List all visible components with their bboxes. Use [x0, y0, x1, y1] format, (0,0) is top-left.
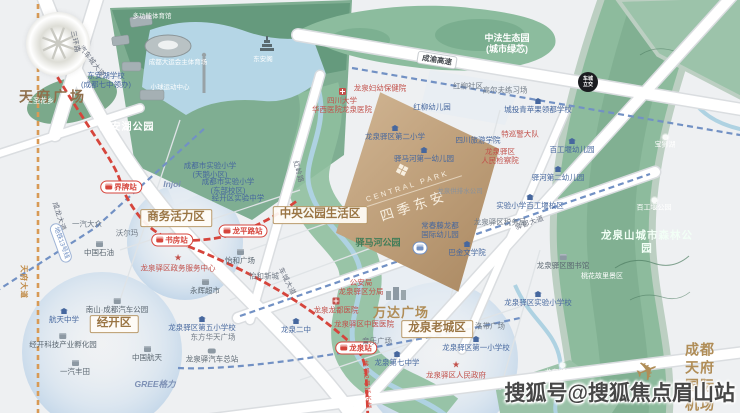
zone-longquan-old-town: 龙泉老城区 [401, 320, 473, 338]
poi-longquan-no7-middle-text: 龙泉第七中学 [375, 358, 420, 367]
universiade-stadium-label-text: 成都大运会主体育场 [149, 59, 208, 67]
peach-blossom-area-label-text: 桃花故里景区 [581, 273, 623, 281]
poi-tax-bureau-text: 龙泉驿区税务局 [474, 218, 527, 227]
poi-shiyan-primary-tiane-text: 成都市实验小学 (天鹅小区) [184, 161, 237, 179]
park-icon [651, 197, 657, 203]
bldg-icon [72, 360, 79, 366]
yidu-avenue-label-text: 驿都大道 [514, 215, 545, 233]
longquan-lake-area-label: 龙泉湖景区 [545, 362, 580, 377]
poi-china-aerospace: 中国航天 [132, 346, 162, 362]
metro2-extension-label-text: 地铁2号延长线 [360, 360, 371, 410]
poi-procuratorate-text: 龙泉驿区 人民检察院 [481, 147, 519, 165]
poi-golf-practice-range-text: 高尔夫练习场 [483, 86, 528, 95]
poi-no1-primary-school: 龙泉驿区第一小学校 [442, 336, 510, 352]
poi-tcm-hospital: 龙泉驿区中医医院 [334, 320, 394, 329]
school-icon [472, 336, 480, 342]
poi-bajin-academy: 巴金文学院 [448, 241, 486, 257]
poi-library-text: 龙泉驿区图书馆 [537, 261, 590, 270]
small-ball-center-label: 小球运动中心 [151, 84, 190, 92]
poi-faw-toyota-text: 一汽丰田 [60, 367, 90, 376]
zone-longquan-old-town-text: 龙泉老城区 [408, 322, 466, 336]
school-icon [420, 147, 428, 153]
poi-donganhu-school-text: 东安湖学校 (成都七中领办) [81, 71, 131, 89]
poi-jingkai-experimental-middle-text: 经开区实验中学 [212, 194, 265, 203]
station-jiepai: 界牌站 [100, 181, 142, 194]
poi-music-plaza: 音乐广场 [362, 337, 392, 346]
interchange-badge: 车城 立交 [578, 72, 598, 92]
tianfu-square-label-text: 天府广场 [19, 89, 87, 106]
sanhuan-road-label: 三环路 [68, 30, 81, 54]
hongling-road-label-text: 红岭路 [290, 160, 304, 184]
poi-district-government: 龙泉驿区人民政府 [426, 361, 486, 380]
poi-no5-primary-school-text: 龙泉驿区第五小学校 [168, 323, 236, 332]
cross-icon [333, 298, 340, 305]
poi-jingkai-incubator: 经开科技产业孵化园 [29, 333, 97, 349]
poi-hongliu-community: 红柳社区 [453, 82, 483, 91]
poi-maternity-hospital-text: 龙泉妇幼保健院 [354, 84, 407, 93]
station-longpinglu: 龙平路站 [219, 225, 268, 238]
train-red-icon [224, 228, 231, 234]
poi-gov-service-center: 龙泉驿区政务服务中心 [141, 254, 216, 273]
poi-no1-primary-school-text: 龙泉驿区第一小学校 [442, 343, 510, 352]
bldg-icon [144, 346, 151, 352]
yimahe-park-label: 驿马河公园 [355, 238, 400, 249]
small-ball-center-label-text: 小球运动中心 [151, 84, 190, 92]
poi-district-government-text: 龙泉驿区人民政府 [426, 371, 486, 380]
baigongyan-park-label-text: 百工堰公园 [637, 204, 672, 212]
poi-no2-primary-school: 龙泉驿区第二小学 [365, 125, 425, 141]
poi-dongfang-huatian-plaza-text: 东方华天广场 [191, 333, 236, 342]
poi-yonghui-supermarket-text: 永辉超市 [190, 286, 220, 295]
wanda-plaza-label-text: 万达广场 [373, 305, 429, 321]
poi-police-branch: 公安局 龙泉驿区分局 [339, 278, 384, 296]
school-icon [393, 351, 401, 357]
station-blue-unnamed [413, 242, 428, 255]
poi-huaxi-longquan-hospital: 四川大学 华西医院龙泉医院 [312, 88, 372, 114]
school-icon [534, 291, 542, 297]
longquanshan-forest-park-label-text: 龙泉山城市森林公园 [601, 229, 694, 254]
poi-sichuan-tourism-college: 四川旅游学院 [456, 136, 501, 145]
poi-petrochina-text: 中国石油 [84, 248, 114, 257]
school-icon [463, 241, 471, 247]
poi-no2-primary-school-text: 龙泉驿区第二小学 [365, 132, 425, 141]
yimahe-park-label-text: 驿马河公园 [355, 238, 400, 249]
bldg-icon [237, 249, 244, 255]
poi-ivy-longdu-kindergarten-text: 常春藤龙都 国际幼儿园 [421, 221, 459, 239]
poi-injoi: Injoi [163, 179, 180, 189]
qichecheng-avenue-label: 汽车城大道 [76, 45, 106, 80]
poi-tcm-hospital-text: 龙泉驿区中医医院 [334, 320, 394, 329]
poi-procuratorate: 龙泉驿区 人民检察院 [481, 147, 519, 165]
train-red-icon [156, 237, 163, 243]
school-icon [554, 166, 562, 172]
poi-yimahe-no1-kindergarten-text: 驿马河第一幼儿园 [394, 154, 454, 163]
poi-baigongyan-kindergarten: 百工堰幼儿园 [550, 138, 595, 154]
poi-water-supply-company-text: 龙泉供排水公司 [437, 188, 483, 196]
chengyu-expressway-pill-text: 成渝高速 [421, 53, 452, 67]
poi-library: 龙泉驿区图书馆 [537, 254, 590, 270]
poi-hongliu-community-text: 红柳社区 [453, 82, 483, 91]
zone-jingkai-district: 经开区 [90, 315, 139, 333]
poi-hongliu-kindergarten-text: 红柳幼儿园 [413, 103, 451, 112]
dongange-pavilion-label-text: 东安阁 [253, 56, 273, 64]
poi-injoi-text: Injoi [163, 179, 180, 189]
school-icon [526, 194, 534, 200]
dongange-pavilion-label: 东安阁 [253, 56, 273, 64]
poi-jingkai-experimental-middle: 经开区实验中学 [212, 194, 265, 203]
school-icon [198, 316, 206, 322]
poi-longquanyi-bus-terminal-text: 龙泉驿汽车总站 [186, 355, 239, 364]
bus-icon [208, 349, 216, 354]
location-map: ❖ CENTRAL PARK 四季东安 ✈ 天府广场三环路汽车城大道成龙大道天府… [0, 0, 740, 413]
donganhu-park-label-text: 东安湖公园 [100, 122, 155, 134]
tianfu-avenue-label: 天府大道 [20, 265, 29, 299]
poi-yihe-newtown-text: 怡和新城 [249, 272, 279, 281]
poi-nanshan-auto-park: 南山·成都汽车公园 [86, 298, 149, 314]
bldg-icon [96, 241, 103, 247]
park-icon [662, 134, 668, 140]
poi-faw-volkswagen: 一汽大众 [72, 220, 102, 229]
checheng-avenue-label: 车城大道 [275, 267, 296, 298]
poi-yihe-plaza-text: 怡和广场 [225, 256, 255, 265]
poi-shiyan-primary-tiane: 成都市实验小学 (天鹅小区) [184, 161, 237, 179]
peach-blossom-area-label: 桃花故里景区 [581, 273, 623, 281]
train-red-icon [105, 184, 112, 190]
poi-faw-toyota: 一汽丰田 [60, 360, 90, 376]
train-blue-icon [417, 245, 424, 251]
poi-yihe-plaza: 怡和广场 [225, 249, 255, 265]
poi-sichuan-tourism-college-text: 四川旅游学院 [456, 136, 501, 145]
qichecheng-avenue-label-text: 汽车城大道 [76, 45, 106, 80]
poi-faw-volkswagen-text: 一汽大众 [72, 220, 102, 229]
poi-gov-service-center-text: 龙泉驿区政务服务中心 [141, 264, 216, 273]
poi-baigongyan-kindergarten-text: 百工堰幼儿园 [550, 145, 595, 154]
poi-golf-practice-range: 高尔夫练习场 [483, 86, 528, 95]
poi-qingpingguo-lingdu-school: 城投青苹果领都学校 [504, 98, 572, 114]
poi-yihe-no2-kindergarten-text: 驿河第二幼儿园 [532, 173, 585, 182]
star-icon [452, 361, 460, 370]
poi-shiyan-primary-east-text: 成都市实验小学 (东部校区) [202, 177, 255, 195]
poi-experimental-primary-school-text: 龙泉驿区实验小学校 [504, 298, 572, 307]
poi-walmart-text: 沃尔玛 [116, 229, 139, 238]
tianfu-avenue-label-text: 天府大道 [20, 265, 29, 299]
interchange-badge-text: 车城 立交 [583, 76, 593, 88]
star-icon [174, 254, 182, 263]
poi-luodai-plaza: 洛带广场 [475, 322, 505, 331]
bldg-icon [202, 279, 209, 285]
baoshi-lake-label: 宝狮湖 [655, 134, 676, 149]
poi-longdu-hospital: 龙泉龙都医院 [314, 298, 359, 315]
baoshi-lake-label-text: 宝狮湖 [655, 141, 676, 149]
poi-longquanyi-bus-terminal: 龙泉驿汽车总站 [186, 349, 239, 364]
checheng-avenue-label-text: 车城大道 [275, 267, 296, 298]
watermark: 搜狐号@搜狐焦点眉山站 [505, 377, 735, 407]
station-longquan-text: 龙泉站 [349, 344, 372, 353]
chengyu-expressway-pill: 成渝高速 [416, 50, 458, 69]
zone-business-vitality-text: 商务活力区 [147, 211, 205, 225]
metro13-line-pill: 地铁13号线 [48, 222, 73, 265]
poi-china-aerospace-text: 中国航天 [132, 353, 162, 362]
park-icon [559, 362, 565, 368]
sanhuan-road-label-text: 三环路 [68, 30, 81, 54]
bldg-icon [114, 298, 121, 304]
poi-bajin-academy-text: 巴金文学院 [448, 248, 486, 257]
poi-music-plaza-text: 音乐广场 [362, 337, 392, 346]
school-icon [534, 98, 542, 104]
poi-yihe-newtown: 怡和新城 [249, 272, 279, 281]
school-icon [292, 318, 300, 324]
station-longquan: 龙泉站 [335, 342, 377, 355]
poi-tax-bureau: 龙泉驿区税务局 [474, 218, 527, 227]
poi-luodai-plaza-text: 洛带广场 [475, 322, 505, 331]
station-jiepai-text: 界牌站 [114, 183, 137, 192]
poi-experimental-primary-baigongyan-text: 实验小学百工堰校区 [496, 201, 564, 210]
zone-central-park-living-text: 中央公园生活区 [280, 208, 361, 222]
multifunction-gym-label: 多功能体育馆 [133, 13, 172, 21]
zone-central-park-living: 中央公园生活区 [273, 206, 368, 224]
map-labels-layer: 天府广场三环路汽车城大道成龙大道天府大道红岭路车城大道驿都大道成渝高速车城 立交… [0, 0, 740, 413]
poi-yihe-no2-kindergarten: 驿河第二幼儿园 [532, 166, 585, 182]
poi-huaxi-longquan-hospital-text: 四川大学 华西医院龙泉医院 [312, 96, 372, 114]
poi-maternity-hospital: 龙泉妇幼保健院 [354, 84, 407, 93]
poi-yimahe-no1-kindergarten: 驿马河第一幼儿园 [394, 147, 454, 163]
sansheng-flower-town-label-text: 三圣花乡 [26, 98, 54, 106]
poi-yonghui-supermarket: 永辉超市 [190, 279, 220, 295]
school-icon [60, 308, 68, 314]
poi-patrol-police-brigade-text: 特巡警大队 [501, 130, 539, 139]
poi-petrochina: 中国石油 [84, 241, 114, 257]
school-icon [568, 138, 576, 144]
sino-french-eco-park-label-text: 中法生态园 (城市绿芯) [484, 33, 529, 55]
poi-patrol-police-brigade: 特巡警大队 [501, 130, 539, 139]
chenglong-avenue-label: 成龙大道 [49, 201, 66, 232]
poi-ivy-longdu-kindergarten: 常春藤龙都 国际幼儿园 [421, 221, 459, 239]
yidu-avenue-label: 驿都大道 [514, 215, 545, 233]
poi-hongliu-kindergarten: 红柳幼儿园 [413, 103, 451, 112]
multifunction-gym-label-text: 多功能体育馆 [133, 13, 172, 21]
sino-french-eco-park-label: 中法生态园 (城市绿芯) [484, 33, 529, 55]
station-longpinglu-text: 龙平路站 [233, 227, 263, 236]
bldg-icon [60, 333, 67, 339]
poi-no5-primary-school: 龙泉驿区第五小学校 [168, 316, 236, 332]
poi-water-supply-company: 龙泉供排水公司 [437, 188, 483, 196]
poi-jingkai-incubator-text: 经开科技产业孵化园 [29, 340, 97, 349]
poi-police-branch-text: 公安局 龙泉驿区分局 [339, 278, 384, 296]
poi-longquan-no2-middle: 龙泉二中 [281, 318, 311, 334]
station-shufang: 书房站 [151, 234, 193, 247]
poi-nanshan-auto-park-text: 南山·成都汽车公园 [86, 305, 149, 314]
poi-qingpingguo-lingdu-school-text: 城投青苹果领都学校 [504, 105, 572, 114]
poi-longdu-hospital-text: 龙泉龙都医院 [314, 306, 359, 315]
cross-icon [339, 88, 346, 95]
poi-dongfang-huatian-plaza: 东方华天广场 [191, 333, 236, 342]
poi-longquan-no7-middle: 龙泉第七中学 [375, 351, 420, 367]
poi-gree-text: GREE格力 [134, 379, 175, 389]
baigongyan-park-label: 百工堰公园 [637, 197, 672, 212]
poi-walmart: 沃尔玛 [116, 229, 139, 238]
poi-hangtian-middle-school-text: 航天中学 [49, 315, 79, 324]
school-icon [391, 125, 399, 131]
zone-business-vitality: 商务活力区 [140, 209, 212, 227]
poi-experimental-primary-school: 龙泉驿区实验小学校 [504, 291, 572, 307]
universiade-stadium-label: 成都大运会主体育场 [149, 59, 208, 67]
poi-longquan-no2-middle-text: 龙泉二中 [281, 325, 311, 334]
poi-hangtian-middle-school: 航天中学 [49, 308, 79, 324]
wanda-plaza-label: 万达广场 [373, 305, 429, 321]
bldg-icon [560, 254, 567, 260]
poi-gree: GREE格力 [134, 379, 175, 389]
train-red-icon [340, 345, 347, 351]
tianfu-square-label: 天府广场 [19, 89, 87, 106]
hongling-road-label: 红岭路 [290, 160, 304, 184]
poi-experimental-primary-baigongyan: 实验小学百工堰校区 [496, 194, 564, 210]
metro2-extension-label: 地铁2号延长线 [360, 360, 371, 410]
chenglong-avenue-label-text: 成龙大道 [49, 201, 66, 232]
zone-jingkai-district-text: 经开区 [97, 317, 132, 331]
poi-donganhu-school: 东安湖学校 (成都七中领办) [81, 71, 131, 89]
metro13-line-pill-text: 地铁13号线 [52, 226, 71, 260]
poi-shiyan-primary-east: 成都市实验小学 (东部校区) [202, 177, 255, 195]
donganhu-park-label: 东安湖公园 [100, 122, 155, 134]
longquanshan-forest-park-label: 龙泉山城市森林公园 [601, 229, 694, 254]
station-shufang-text: 书房站 [165, 236, 188, 245]
sansheng-flower-town-label: 三圣花乡 [26, 98, 54, 106]
